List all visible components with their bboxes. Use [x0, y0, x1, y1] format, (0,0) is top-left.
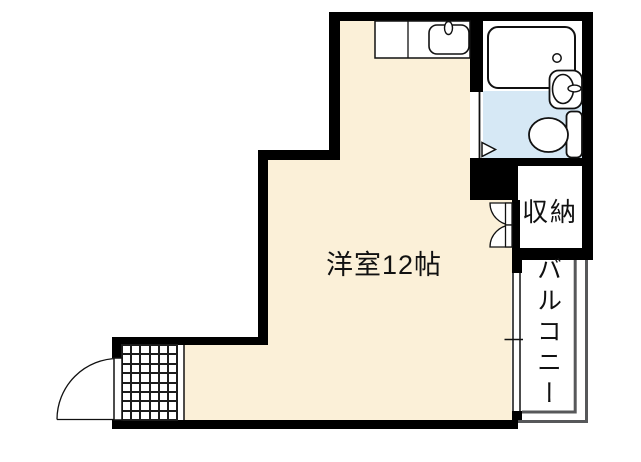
- wall-segment: [512, 260, 522, 273]
- kitchen-counter: [375, 21, 470, 58]
- closet-label: 収納: [518, 198, 582, 227]
- wall-segment: [258, 150, 268, 345]
- closet-door-leaf: [506, 203, 513, 225]
- wall-segment: [329, 12, 593, 21]
- entrance-tile-grid: [122, 345, 177, 420]
- wall-segment: [112, 420, 518, 429]
- wall-segment: [582, 12, 593, 260]
- bathtub-drain: [553, 54, 561, 62]
- wall-segment: [470, 158, 518, 200]
- bathroom-area: [470, 21, 582, 158]
- closet-door-leaf: [506, 225, 513, 247]
- floor-plan: 洋室12帖 収納 バルコニー: [0, 0, 641, 462]
- wall-segment: [329, 12, 340, 160]
- room-label: 洋室12帖: [326, 251, 442, 281]
- wall-segment: [112, 337, 122, 358]
- wall-segment: [470, 12, 483, 92]
- balcony-label: バルコニー: [533, 256, 561, 411]
- wall-segment: [112, 337, 268, 345]
- bathroom-door-opening: [470, 92, 483, 158]
- entrance-door-swing-arc: [57, 359, 118, 420]
- toilet-bowl: [529, 118, 568, 152]
- kitchen-faucet: [445, 22, 453, 35]
- entrance-door: [114, 358, 122, 420]
- wall-segment: [258, 150, 340, 160]
- wall-segment: [512, 411, 522, 420]
- washbasin-faucet: [568, 85, 581, 92]
